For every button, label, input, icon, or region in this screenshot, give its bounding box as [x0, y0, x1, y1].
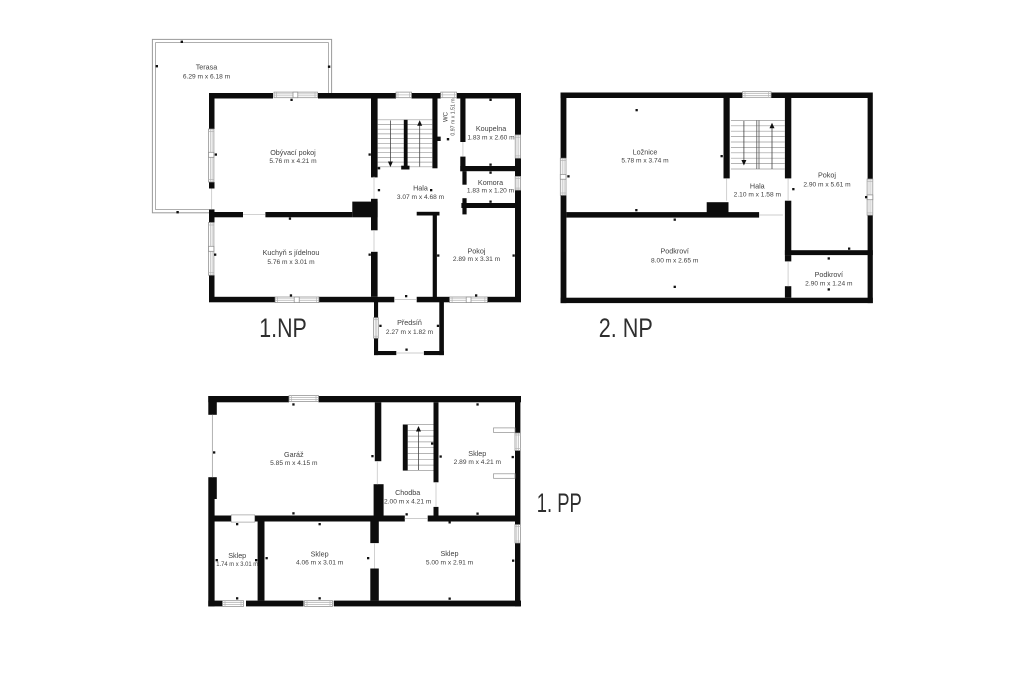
- svg-text:Terasa: Terasa: [196, 63, 218, 72]
- svg-text:1.74 m x 3.01 m: 1.74 m x 3.01 m: [216, 561, 258, 568]
- svg-text:Pokoj: Pokoj: [818, 171, 836, 180]
- svg-text:6.29 m x 6.18 m: 6.29 m x 6.18 m: [183, 73, 231, 80]
- svg-text:Předsíň: Předsíň: [397, 318, 422, 327]
- svg-text:Sklep: Sklep: [441, 549, 459, 558]
- svg-text:Podkroví: Podkroví: [661, 247, 689, 256]
- svg-text:5.78 m x 3.74 m: 5.78 m x 3.74 m: [621, 157, 669, 164]
- svg-text:Obývací pokoj: Obývací pokoj: [270, 148, 316, 157]
- svg-text:1.83 m x 1.20 m: 1.83 m x 1.20 m: [467, 187, 515, 194]
- svg-text:2.90 m x 5.61 m: 2.90 m x 5.61 m: [803, 181, 851, 188]
- svg-text:5.76 m x 4.21 m: 5.76 m x 4.21 m: [269, 158, 317, 165]
- svg-text:Koupelna: Koupelna: [476, 124, 506, 133]
- svg-text:Sklep: Sklep: [228, 551, 246, 560]
- svg-text:5.76 m x 3.01 m: 5.76 m x 3.01 m: [267, 259, 315, 266]
- svg-text:1. PP: 1. PP: [537, 488, 582, 518]
- svg-text:2.89 m x 3.31 m: 2.89 m x 3.31 m: [453, 256, 501, 263]
- svg-text:Hala: Hala: [750, 182, 765, 191]
- svg-text:2.90 m x 1.24 m: 2.90 m x 1.24 m: [805, 281, 853, 288]
- svg-text:Hala: Hala: [413, 184, 428, 193]
- svg-text:5.85 m x 4.15 m: 5.85 m x 4.15 m: [270, 460, 318, 467]
- svg-text:Sklep: Sklep: [468, 449, 486, 458]
- svg-text:2.89 m x 4.21 m: 2.89 m x 4.21 m: [454, 459, 502, 466]
- svg-text:2.10 m x 1.58 m: 2.10 m x 1.58 m: [734, 191, 782, 198]
- svg-text:2.27 m x 1.82 m: 2.27 m x 1.82 m: [386, 329, 434, 336]
- svg-text:2. NP: 2. NP: [599, 313, 653, 343]
- svg-text:0.97 m x 1.51 m: 0.97 m x 1.51 m: [451, 98, 457, 135]
- svg-text:4.06 m x 3.01 m: 4.06 m x 3.01 m: [296, 560, 344, 567]
- svg-text:Podkroví: Podkroví: [815, 270, 843, 279]
- svg-text:5.00 m x 2.91 m: 5.00 m x 2.91 m: [426, 559, 474, 566]
- svg-text:3.07 m x 4.68 m: 3.07 m x 4.68 m: [397, 194, 445, 201]
- svg-text:2.00 m x 4.21 m: 2.00 m x 4.21 m: [384, 499, 432, 506]
- svg-text:Ložnice: Ložnice: [633, 148, 658, 157]
- svg-text:Komora: Komora: [478, 178, 503, 187]
- svg-text:Chodba: Chodba: [395, 488, 420, 497]
- svg-text:Kuchyň s jídelnou: Kuchyň s jídelnou: [263, 248, 320, 257]
- svg-text:1.NP: 1.NP: [259, 313, 307, 343]
- svg-text:8.00 m x 2.65 m: 8.00 m x 2.65 m: [651, 257, 699, 264]
- svg-text:1.83 m x 2.60 m: 1.83 m x 2.60 m: [467, 134, 515, 141]
- svg-text:WC: WC: [444, 111, 450, 122]
- svg-text:Pokoj: Pokoj: [468, 246, 486, 255]
- svg-text:Sklep: Sklep: [311, 550, 329, 559]
- svg-text:Garáž: Garáž: [284, 450, 304, 459]
